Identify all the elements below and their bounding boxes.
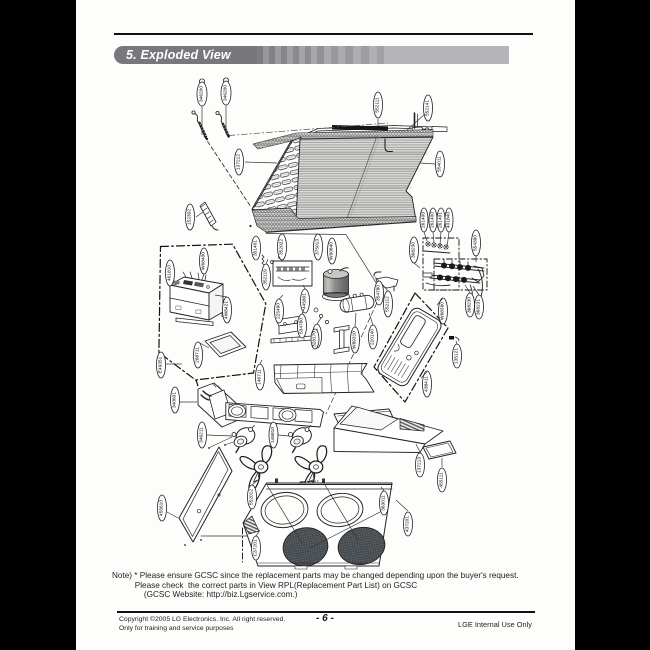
svg-text:261400: 261400: [421, 212, 427, 228]
svg-text:455610: 455610: [159, 500, 165, 516]
svg-text:340601: 340601: [172, 392, 178, 408]
svg-text:552141: 552141: [425, 100, 431, 116]
svg-text:554011: 554011: [437, 156, 443, 172]
svg-text:368230: 368230: [467, 297, 473, 313]
svg-text:135121: 135121: [454, 348, 460, 364]
svg-text:261401: 261401: [438, 212, 444, 228]
svg-text:437201: 437201: [405, 516, 411, 532]
svg-text:534780: 534780: [299, 318, 305, 334]
svg-text:552111: 552111: [375, 97, 381, 113]
svg-text:552112: 552112: [385, 296, 391, 312]
svg-text:146810: 146810: [270, 427, 276, 443]
svg-text:346200: 346200: [199, 86, 205, 102]
svg-text:351401: 351401: [253, 240, 259, 256]
svg-text:W90840: W90840: [329, 242, 335, 260]
svg-text:E49351: E49351: [158, 356, 164, 373]
svg-text:354780: 354780: [376, 285, 382, 301]
svg-text:268711: 268711: [195, 347, 201, 363]
svg-text:455111: 455111: [439, 472, 445, 488]
svg-text:352022: 352022: [279, 239, 285, 255]
svg-text:225490: 225490: [276, 303, 282, 319]
svg-text:401840: 401840: [446, 212, 452, 228]
svg-text:137212: 137212: [236, 154, 242, 170]
svg-text:552012: 552012: [249, 489, 255, 505]
svg-text:346200: 346200: [223, 85, 229, 101]
svg-text:368231: 368231: [476, 299, 482, 315]
svg-text:W89310: W89310: [352, 331, 358, 349]
svg-text:W68400: W68400: [201, 252, 207, 270]
svg-text:220140: 220140: [370, 329, 376, 345]
svg-text:4W8421: 4W8421: [224, 301, 230, 319]
svg-text:368230: 368230: [411, 242, 417, 258]
svg-text:W68390: W68390: [440, 302, 446, 320]
svg-text:554390: 554390: [473, 235, 479, 251]
svg-text:438411: 438411: [424, 376, 430, 392]
svg-text:146711: 146711: [257, 369, 263, 385]
svg-text:346211: 346211: [199, 427, 205, 443]
svg-text:137213: 137213: [417, 457, 423, 473]
svg-text:375013: 375013: [315, 239, 321, 255]
svg-text:261400: 261400: [430, 212, 436, 228]
svg-text:445801: 445801: [302, 293, 308, 309]
svg-text:461810: 461810: [167, 265, 173, 281]
svg-text:352119: 352119: [263, 269, 269, 285]
svg-text:363011: 363011: [381, 495, 387, 511]
svg-text:C37201: C37201: [253, 539, 259, 556]
svg-text:328170: 328170: [312, 331, 318, 347]
svg-text:152302: 152302: [187, 209, 193, 225]
